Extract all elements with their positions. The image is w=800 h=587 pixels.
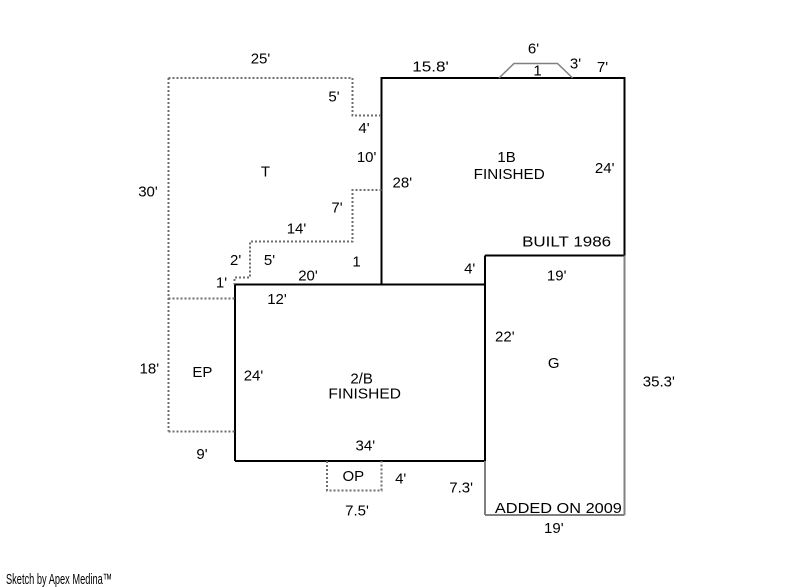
svg-text:FINISHED: FINISHED: [474, 166, 545, 183]
svg-text:FINISHED: FINISHED: [328, 385, 401, 402]
svg-text:3': 3': [570, 56, 581, 73]
svg-text:BUILT 1986: BUILT 1986: [522, 234, 611, 251]
svg-text:34': 34': [356, 437, 376, 454]
svg-text:22': 22': [495, 329, 515, 346]
svg-text:OP: OP: [342, 468, 364, 485]
svg-text:19': 19': [544, 520, 564, 537]
svg-text:7.3': 7.3': [449, 479, 473, 496]
svg-text:6': 6': [528, 41, 539, 58]
svg-text:24': 24': [244, 367, 264, 384]
svg-text:4': 4': [358, 120, 369, 137]
svg-text:9': 9': [196, 446, 207, 463]
svg-text:EP: EP: [192, 364, 212, 381]
svg-text:14': 14': [287, 221, 307, 238]
svg-text:19': 19': [547, 268, 567, 285]
svg-text:5': 5': [264, 252, 275, 269]
svg-text:7.5': 7.5': [345, 503, 369, 520]
svg-text:Sketch by Apex Medina™: Sketch by Apex Medina™: [6, 571, 112, 587]
svg-text:7': 7': [597, 59, 608, 76]
svg-text:18': 18': [140, 360, 160, 377]
svg-text:12': 12': [267, 291, 287, 308]
svg-text:4': 4': [395, 470, 406, 487]
svg-text:T: T: [261, 164, 270, 181]
svg-text:24': 24': [595, 160, 615, 177]
svg-text:1': 1': [216, 275, 227, 292]
svg-text:15.8': 15.8': [412, 59, 449, 76]
svg-text:30': 30': [138, 184, 158, 201]
svg-text:35.3': 35.3': [643, 374, 675, 391]
svg-text:1: 1: [352, 254, 360, 271]
svg-text:10': 10': [357, 149, 377, 166]
svg-text:25': 25': [251, 51, 271, 68]
svg-text:1: 1: [533, 63, 541, 80]
svg-text:20': 20': [298, 268, 318, 285]
svg-text:1B: 1B: [497, 149, 515, 166]
svg-text:28': 28': [393, 174, 413, 191]
svg-text:7': 7': [331, 200, 342, 217]
svg-text:G: G: [548, 355, 560, 372]
svg-text:5': 5': [328, 89, 339, 106]
svg-text:4': 4': [464, 261, 475, 278]
svg-text:2': 2': [230, 252, 241, 269]
svg-text:ADDED ON 2009: ADDED ON 2009: [495, 500, 622, 517]
